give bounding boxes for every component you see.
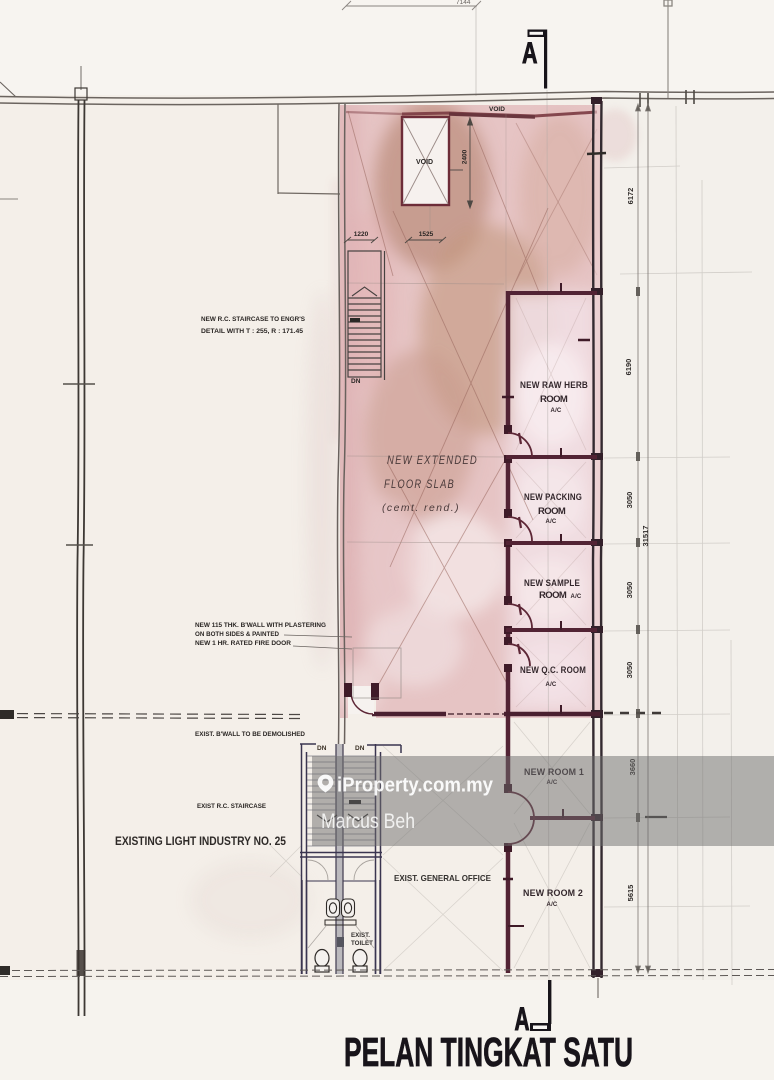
svg-text:DN: DN: [317, 745, 327, 752]
svg-text:ROOM: ROOM: [539, 590, 567, 601]
svg-text:31517: 31517: [641, 526, 650, 547]
svg-text:TOILET: TOILET: [351, 940, 373, 947]
svg-text:DN: DN: [355, 745, 365, 752]
svg-text:A/C: A/C: [546, 519, 557, 525]
svg-text:EXISTING LIGHT INDUSTRY NO. 25: EXISTING LIGHT INDUSTRY NO. 25: [115, 836, 287, 848]
svg-text:PELAN TINGKAT SATU: PELAN TINGKAT SATU: [344, 1029, 633, 1075]
svg-text:NEW 115 THK. B'WALL WITH PLAST: NEW 115 THK. B'WALL WITH PLASTERING: [195, 622, 326, 629]
svg-text:A/C: A/C: [547, 902, 558, 908]
svg-text:5615: 5615: [626, 885, 635, 902]
svg-text:FLOOR SLAB: FLOOR SLAB: [384, 479, 455, 491]
svg-text:1525: 1525: [419, 231, 434, 238]
svg-text:NEW Q.C. ROOM: NEW Q.C. ROOM: [520, 665, 586, 676]
svg-text:3050: 3050: [625, 662, 634, 679]
svg-text:ON BOTH SIDES & PAINTED: ON BOTH SIDES & PAINTED: [195, 631, 279, 638]
svg-text:DN: DN: [351, 378, 361, 385]
svg-text:A/C: A/C: [571, 594, 582, 600]
svg-text:A/C: A/C: [546, 682, 557, 688]
svg-text:iProperty.com.my: iProperty.com.my: [337, 774, 494, 797]
svg-text:3050: 3050: [625, 492, 634, 509]
svg-text:VOID: VOID: [489, 106, 505, 113]
svg-text:3050: 3050: [625, 582, 634, 599]
svg-text:A: A: [522, 37, 538, 70]
svg-text:EXIST. GENERAL OFFICE: EXIST. GENERAL OFFICE: [394, 873, 491, 883]
svg-text:NEW SAMPLE: NEW SAMPLE: [524, 578, 580, 589]
svg-text:NEW PACKING: NEW PACKING: [524, 492, 582, 503]
svg-text:Marcus Beh: Marcus Beh: [321, 810, 415, 833]
svg-text:NEW R.C. STAIRCASE TO ENGR'S: NEW R.C. STAIRCASE TO ENGR'S: [201, 316, 305, 323]
svg-text:(cemt. rend.): (cemt. rend.): [382, 502, 460, 514]
svg-text:NEW ROOM 2: NEW ROOM 2: [523, 888, 583, 899]
svg-text:A/C: A/C: [551, 408, 562, 414]
svg-text:ROOM: ROOM: [538, 506, 566, 517]
svg-text:VOID: VOID: [416, 159, 433, 166]
svg-text:6190: 6190: [624, 359, 633, 376]
svg-text:NEW EXTENDED: NEW EXTENDED: [387, 455, 478, 467]
svg-text:EXIST. B'WALL TO BE DEMOLISHED: EXIST. B'WALL TO BE DEMOLISHED: [195, 731, 305, 738]
svg-text:7144: 7144: [456, 0, 471, 6]
svg-text:EXIST.: EXIST.: [351, 932, 370, 939]
svg-text:EXIST R.C. STAIRCASE: EXIST R.C. STAIRCASE: [197, 803, 266, 810]
svg-text:NEW 1 HR. RATED FIRE DOOR: NEW 1 HR. RATED FIRE DOOR: [195, 640, 291, 647]
svg-text:6172: 6172: [626, 188, 635, 205]
svg-text:1220: 1220: [354, 231, 369, 238]
svg-text:DETAIL WITH T : 255, R : 171.4: DETAIL WITH T : 255, R : 171.45: [201, 328, 303, 335]
svg-text:NEW RAW HERB: NEW RAW HERB: [520, 380, 588, 391]
svg-text:2400: 2400: [462, 149, 469, 164]
svg-text:ROOM: ROOM: [540, 394, 568, 405]
